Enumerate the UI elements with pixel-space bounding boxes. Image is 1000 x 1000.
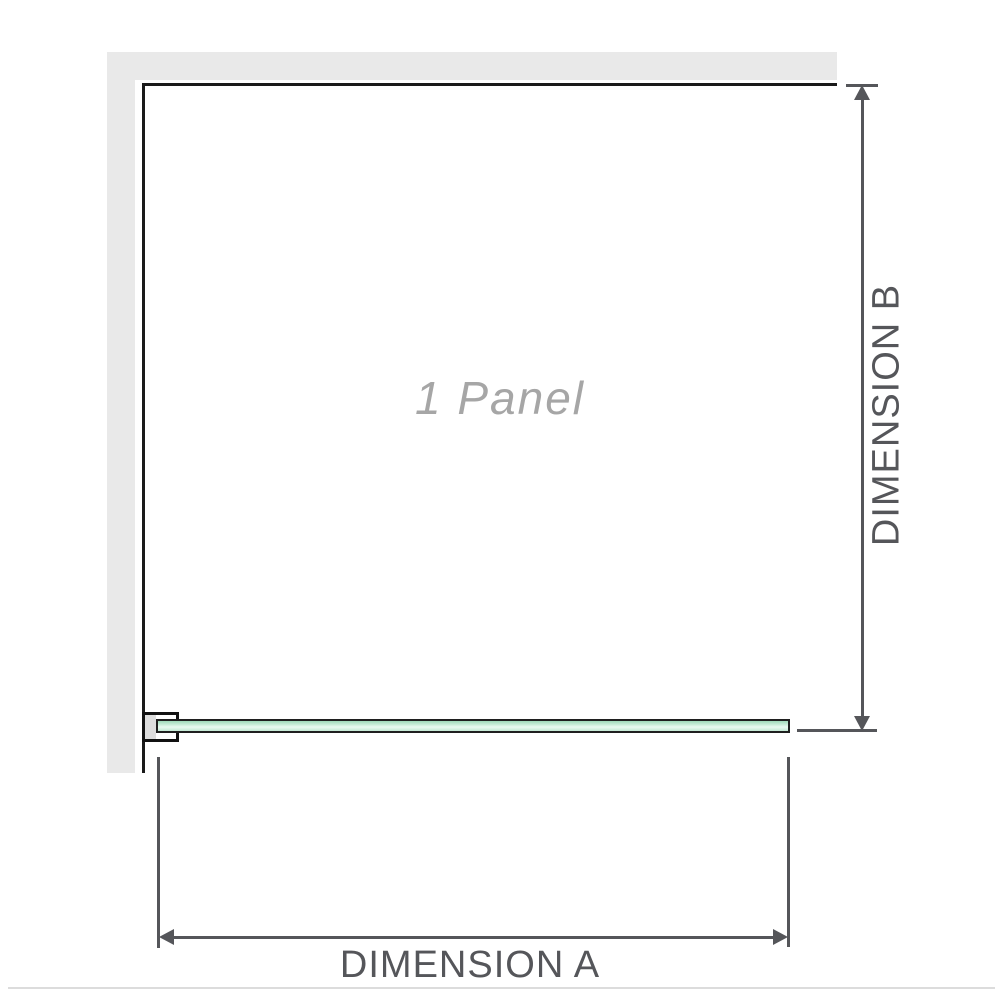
arrow-up-icon bbox=[854, 85, 870, 100]
wall-left-edge-line bbox=[142, 83, 145, 773]
arrow-right-icon bbox=[773, 929, 788, 945]
wall-bracket-insert bbox=[145, 715, 156, 739]
dimension-b-label: DIMENSION B bbox=[866, 284, 909, 546]
dimension-a-left-extension-line bbox=[157, 757, 160, 948]
dimension-b-line bbox=[861, 97, 864, 717]
panel-dimension-diagram: 1 Panel DIMENSION B DIMENSION A bbox=[0, 0, 1000, 1000]
wall-left-bar bbox=[107, 52, 135, 773]
wall-top-bar bbox=[107, 52, 837, 80]
glass-panel-bar bbox=[156, 719, 790, 733]
dimension-a-right-extension-line bbox=[787, 757, 790, 947]
arrow-down-icon bbox=[854, 716, 870, 731]
dimension-a-label: DIMENSION A bbox=[340, 944, 600, 987]
bottom-divider-line bbox=[8, 987, 995, 989]
panel-count-label: 1 Panel bbox=[415, 371, 585, 425]
dimension-a-line bbox=[163, 936, 784, 939]
arrow-left-icon bbox=[159, 929, 174, 945]
wall-top-edge-line bbox=[142, 83, 837, 86]
